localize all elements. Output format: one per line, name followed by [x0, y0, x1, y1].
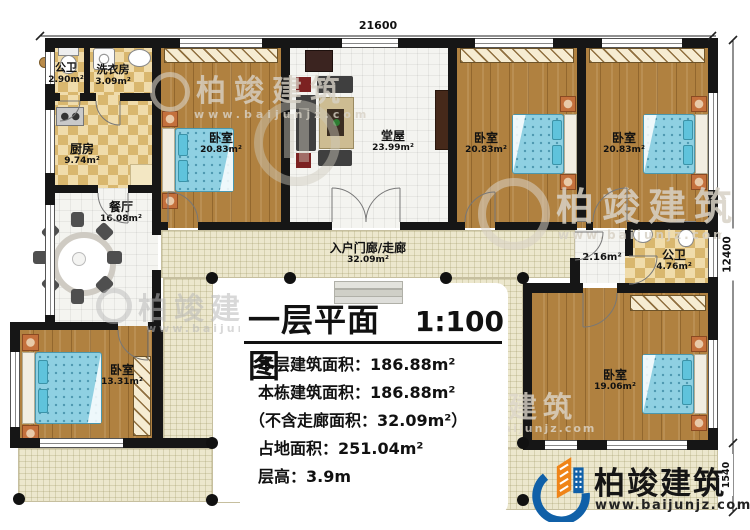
- watermark-logo-icon: [96, 288, 132, 324]
- brand-logo[interactable]: 柏竣建筑 www.baijunjz.com: [528, 448, 738, 523]
- bed-headboard: [694, 354, 707, 414]
- label-laundry: 洗衣房3.09m²: [83, 64, 143, 88]
- nightstand: [691, 96, 707, 112]
- label-dining: 餐厅16.08m²: [91, 200, 151, 225]
- floor-plan: 柏竣建筑 www.baijunjz.com 柏竣建筑 www.baijunjz.…: [0, 0, 750, 530]
- window: [602, 38, 682, 48]
- dining-table-center: [72, 252, 86, 266]
- title-line-excl-corridor: （不含走廊面积：32.09m²）: [249, 407, 504, 435]
- window: [40, 438, 123, 448]
- title-line-floor-area: 本层建筑面积：186.88m²: [258, 351, 504, 379]
- label-hall: 堂屋23.99m²: [363, 129, 423, 154]
- brand-name: 柏竣建筑: [594, 458, 726, 503]
- watermark-brand: 柏竣建筑: [556, 176, 740, 231]
- wall-segment: [198, 222, 281, 230]
- wall-segment: [161, 222, 168, 230]
- chair: [71, 212, 84, 227]
- window: [708, 340, 718, 428]
- pillow: [682, 360, 692, 380]
- nightstand: [162, 111, 178, 127]
- label-bedroom-tr: 卧室20.83m²: [594, 131, 654, 156]
- watermark-logo-icon: [284, 114, 294, 158]
- label-bath-right: 公卫4.76m²: [644, 248, 704, 273]
- wall-segment: [532, 283, 583, 293]
- wardrobe: [589, 48, 705, 63]
- watermark-logo-icon: [254, 100, 340, 186]
- wall-segment: [55, 93, 60, 101]
- plan-scale: 1:100: [415, 305, 504, 338]
- label-bedroom-bl: 卧室13.31m²: [92, 363, 152, 388]
- watermark-logo-icon: [299, 108, 309, 162]
- pillow: [683, 145, 693, 165]
- title-underline: [244, 341, 502, 344]
- label-corridor: 入户门廊/走廊32.09m²: [308, 241, 428, 266]
- window: [45, 205, 55, 315]
- title-block: 一层平面图 1:100 本层建筑面积：186.88m² 本栋建筑面积：186.8…: [240, 283, 508, 515]
- title-line-building-area: 本栋建筑面积：186.88m²: [258, 379, 504, 407]
- window: [708, 237, 718, 277]
- dimension-top: 21600: [348, 19, 408, 32]
- wall-segment: [152, 330, 163, 440]
- tv-cabinet: [435, 90, 449, 150]
- wall-segment: [400, 222, 448, 230]
- title-line-footprint: 占地面积：251.04m²: [258, 435, 504, 463]
- label-kitchen: 厨房9.74m²: [52, 142, 112, 167]
- door-opening[interactable]: [342, 38, 398, 48]
- nightstand: [162, 193, 178, 209]
- bed-headboard: [695, 114, 708, 174]
- bed-headboard: [564, 114, 577, 174]
- stove: [56, 107, 84, 126]
- label-bedroom-tl: 卧室20.83m²: [191, 131, 251, 156]
- entry-steps: [334, 281, 403, 289]
- bed-headboard: [22, 352, 35, 424]
- watermark-url: www.baijunjz.com: [558, 228, 729, 242]
- nightstand: [22, 334, 39, 351]
- label-bedroom-br: 卧室19.06m²: [585, 368, 645, 393]
- dimension-right: 12400: [722, 229, 735, 281]
- wall-segment: [617, 283, 708, 293]
- label-bedroom-tm: 卧室20.83m²: [456, 131, 516, 156]
- wall-segment: [120, 93, 152, 101]
- nightstand: [691, 336, 707, 352]
- chair: [107, 251, 122, 264]
- window: [180, 38, 262, 48]
- window: [475, 38, 553, 48]
- wall-segment: [457, 222, 465, 230]
- watermark-brand: 柏竣建筑: [196, 66, 348, 110]
- pillow: [682, 385, 692, 405]
- wall-segment: [152, 38, 161, 235]
- wall-segment: [290, 222, 332, 230]
- chair: [71, 289, 84, 304]
- wall-segment: [45, 185, 98, 193]
- bed-headboard: [162, 128, 175, 192]
- entry-steps: [334, 296, 403, 304]
- pillow: [178, 134, 188, 156]
- pillow: [38, 389, 48, 413]
- wardrobe: [460, 48, 574, 63]
- wall-segment: [80, 93, 96, 101]
- wall-segment: [10, 322, 118, 330]
- wardrobe: [630, 295, 706, 311]
- label-vestibule: 2.16m²: [577, 252, 627, 264]
- watermark-logo-icon: [478, 178, 550, 250]
- nightstand: [560, 96, 576, 112]
- pillow: [683, 120, 693, 140]
- wall-segment: [128, 185, 152, 193]
- pillow: [38, 360, 48, 384]
- pillow: [178, 160, 188, 182]
- pillow: [552, 145, 562, 165]
- brand-url: www.baijunjz.com: [595, 498, 750, 513]
- watermark-logo-icon: [150, 72, 190, 112]
- brand-logo-icon: [532, 452, 594, 522]
- pillow: [552, 120, 562, 140]
- window: [10, 352, 20, 427]
- wardrobe: [164, 48, 278, 63]
- title-line-storey-height: 层高：3.9m: [258, 463, 504, 491]
- nightstand: [691, 415, 707, 431]
- porch-tile-bottom-left: [18, 448, 213, 502]
